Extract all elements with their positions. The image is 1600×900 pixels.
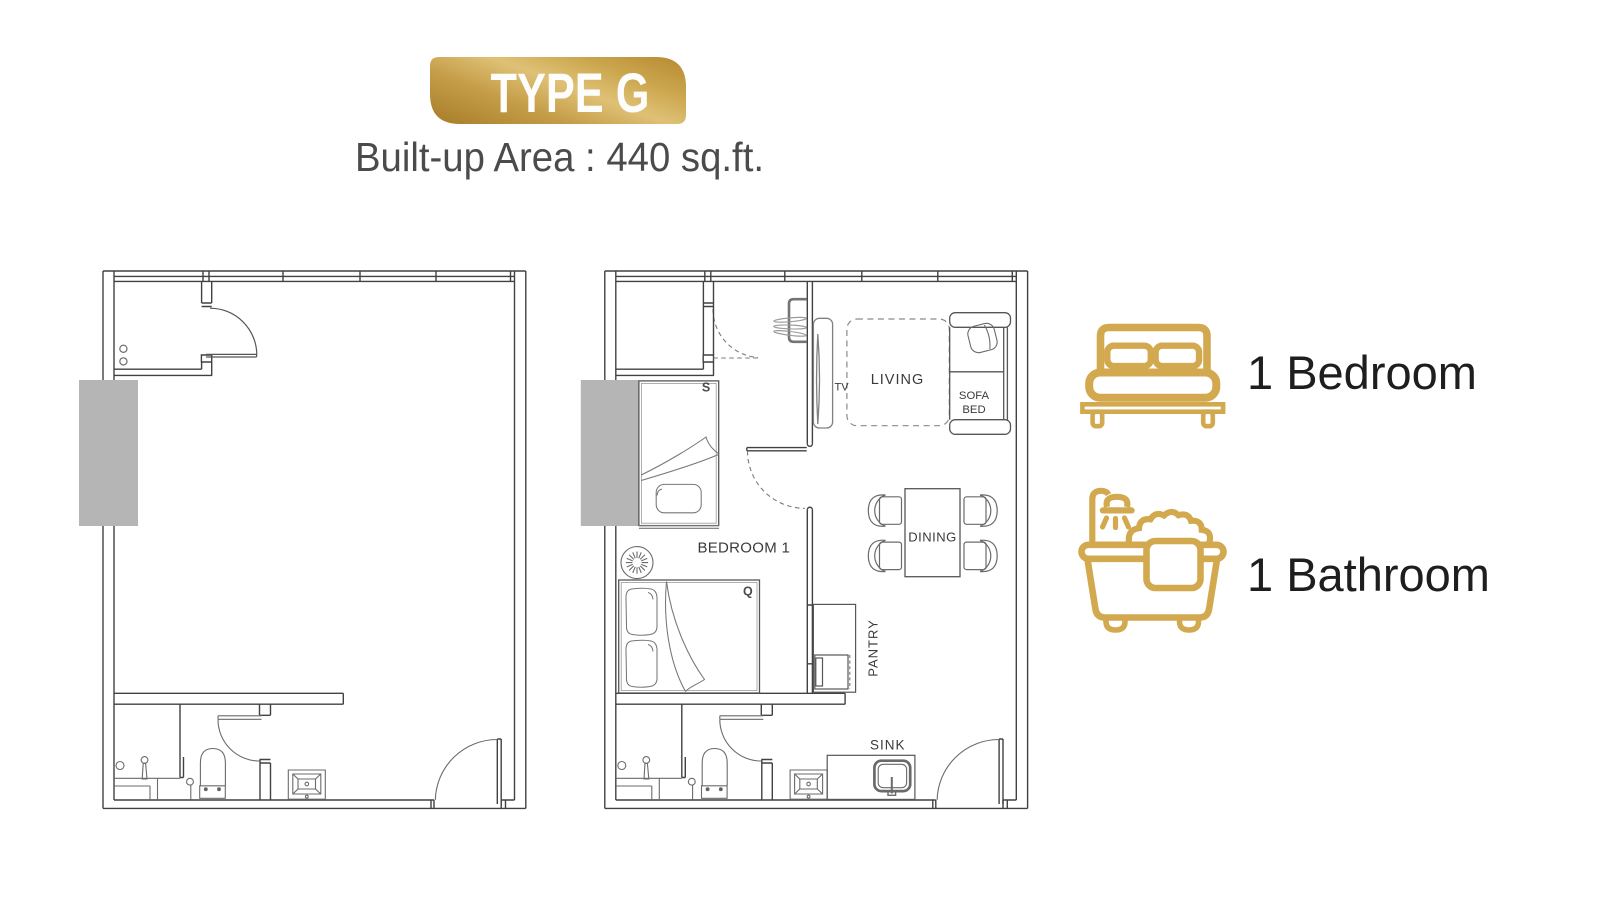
svg-text:Q: Q bbox=[743, 585, 753, 599]
svg-text:SOFA: SOFA bbox=[959, 390, 990, 402]
svg-text:1 Bathroom: 1 Bathroom bbox=[1247, 548, 1490, 601]
svg-text:DINING: DINING bbox=[908, 530, 957, 545]
svg-text:LIVING: LIVING bbox=[871, 372, 925, 388]
svg-text:TV: TV bbox=[834, 382, 849, 394]
svg-text:TYPE G: TYPE G bbox=[491, 61, 650, 124]
svg-text:Built-up Area : 440 sq.ft.: Built-up Area : 440 sq.ft. bbox=[355, 134, 764, 180]
svg-text:SINK: SINK bbox=[870, 738, 906, 753]
svg-text:BED: BED bbox=[962, 404, 985, 416]
svg-text:PANTRY: PANTRY bbox=[866, 619, 881, 677]
svg-text:S: S bbox=[702, 380, 710, 394]
svg-text:BEDROOM 1: BEDROOM 1 bbox=[697, 540, 790, 557]
svg-text:1 Bedroom: 1 Bedroom bbox=[1247, 346, 1477, 399]
